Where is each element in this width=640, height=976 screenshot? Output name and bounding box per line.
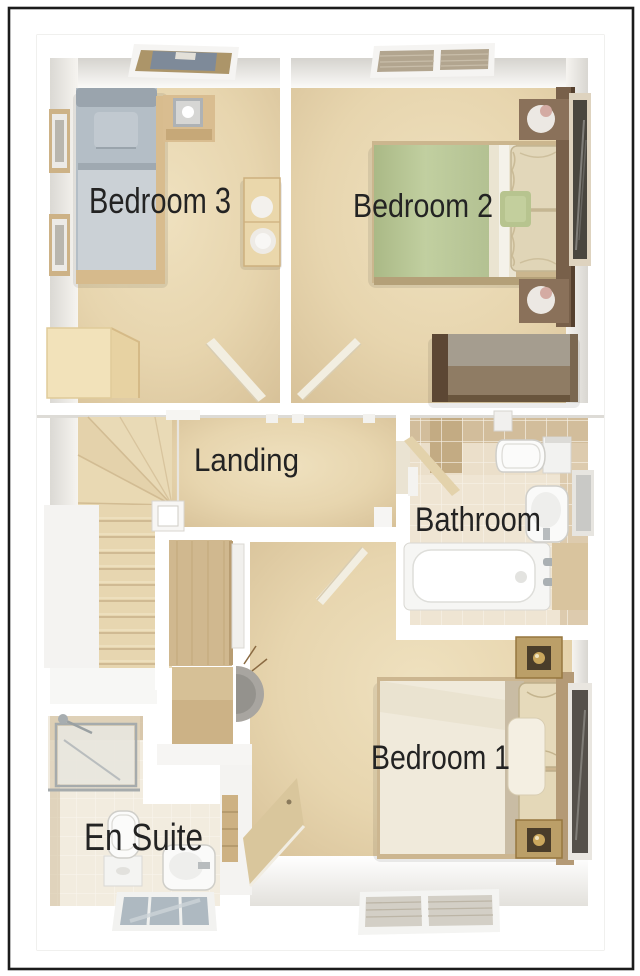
svg-text:En Suite: En Suite xyxy=(84,817,203,859)
svg-text:Bedroom 1: Bedroom 1 xyxy=(371,739,510,777)
svg-text:Bathroom: Bathroom xyxy=(415,501,541,539)
svg-text:Bedroom 3: Bedroom 3 xyxy=(89,180,231,221)
svg-text:Landing: Landing xyxy=(194,442,299,478)
svg-text:Bedroom 2: Bedroom 2 xyxy=(353,187,493,224)
